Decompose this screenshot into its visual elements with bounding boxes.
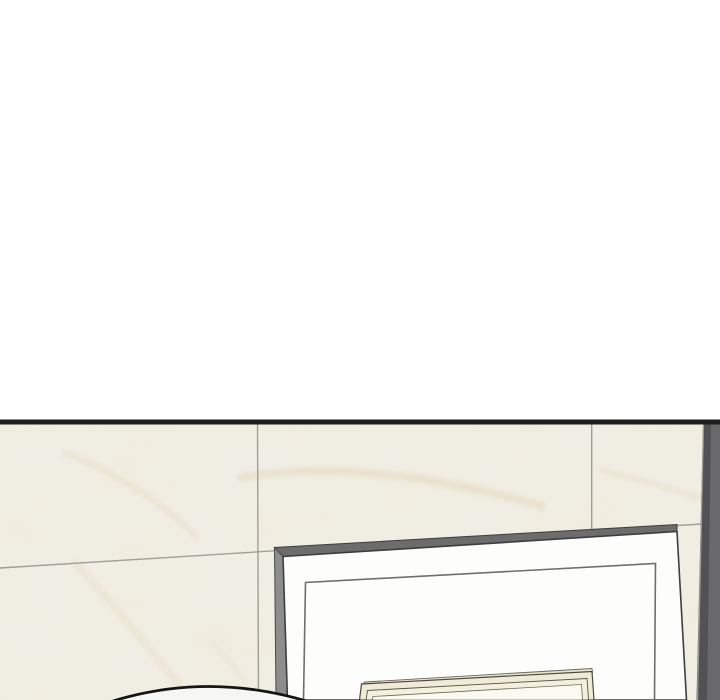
panel-illustration	[0, 0, 720, 700]
gutter-top	[0, 0, 720, 420]
comic-panel	[0, 0, 720, 700]
panel-top-border	[0, 420, 720, 425]
